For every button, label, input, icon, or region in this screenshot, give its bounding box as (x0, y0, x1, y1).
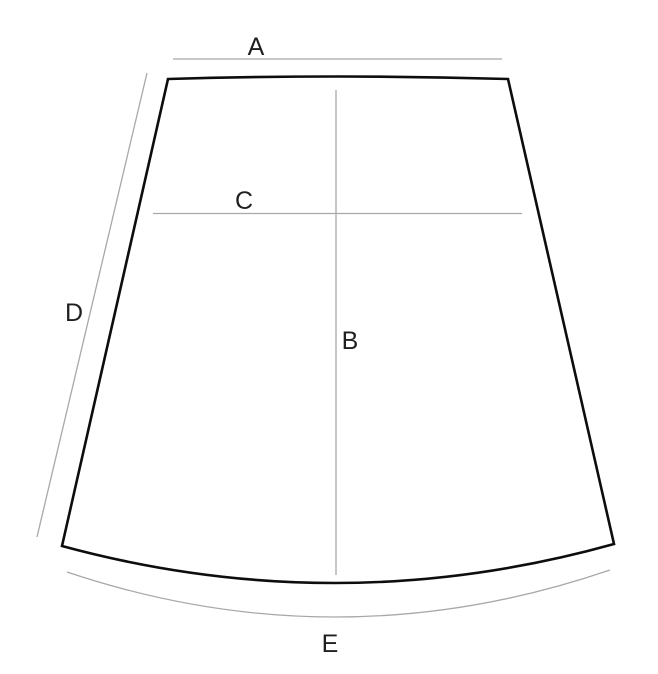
label-b: B (342, 327, 359, 355)
measure-line-side-length-d (37, 73, 147, 537)
diagram-svg: A B C D E (0, 0, 658, 674)
label-e: E (322, 630, 339, 658)
skirt-outline (62, 77, 614, 584)
label-c: C (235, 187, 253, 215)
label-a: A (248, 33, 265, 61)
measure-curve-hem-width-e (67, 570, 610, 617)
skirt-measurement-diagram: A B C D E (0, 0, 658, 674)
label-d: D (65, 299, 83, 327)
